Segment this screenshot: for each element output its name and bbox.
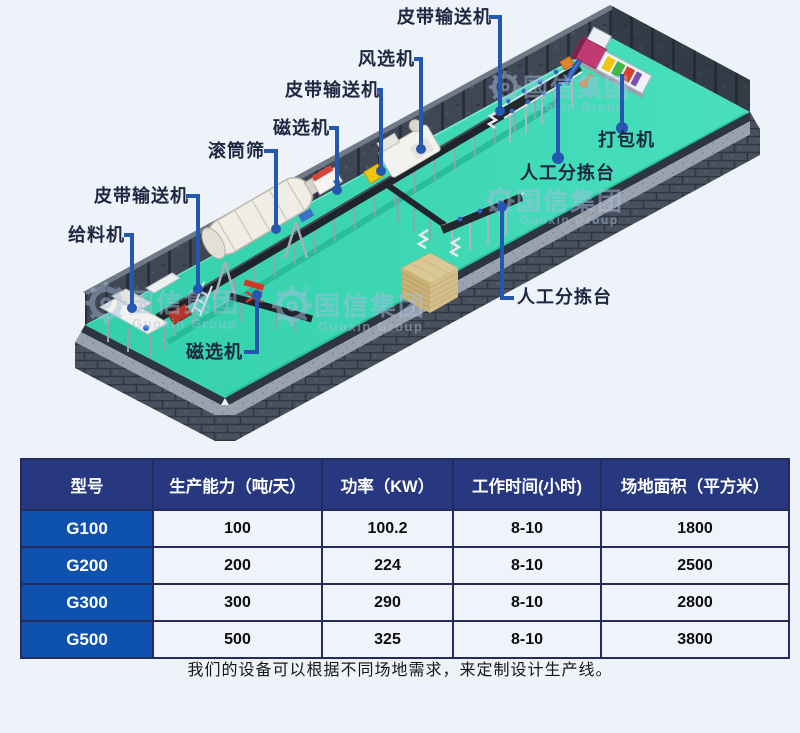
label-magnet-top: 磁选机 — [273, 119, 330, 139]
svg-text:国信集团: 国信集团 — [128, 288, 240, 318]
label-sorting-upper: 人工分拣台 — [520, 164, 615, 184]
table-row: G100 100 100.2 8-10 1800 — [21, 510, 789, 547]
cell-capacity: 100 — [153, 510, 322, 547]
table-row: G300 300 290 8-10 2800 — [21, 584, 789, 621]
cell-capacity: 500 — [153, 621, 322, 658]
label-feeder: 给料机 — [68, 226, 125, 246]
cell-power: 290 — [322, 584, 453, 621]
table-row: G500 500 325 8-10 3800 — [21, 621, 789, 658]
page: 国信集团 Guoxin Group 国信集团 Guoxin Group ® 国信… — [0, 0, 800, 733]
label-trommel-screen: 滚筒筛 — [208, 142, 265, 162]
label-magnet-bottom: 磁选机 — [186, 343, 243, 363]
cell-area: 2800 — [601, 584, 789, 621]
label-belt-conveyor-mid: 皮带输送机 — [285, 81, 380, 101]
cell-power: 100.2 — [322, 510, 453, 547]
col-header-area: 场地面积（平方米） — [601, 459, 789, 510]
svg-text:国信集团: 国信集团 — [523, 73, 631, 102]
label-baler: 打包机 — [598, 131, 655, 151]
label-wind-separator: 风选机 — [358, 50, 415, 70]
cell-hours: 8-10 — [453, 621, 601, 658]
col-header-power: 功率（KW） — [322, 459, 453, 510]
cell-capacity: 300 — [153, 584, 322, 621]
svg-text:国信集团: 国信集团 — [516, 187, 624, 216]
cell-model: G200 — [21, 547, 153, 584]
cell-model: G300 — [21, 584, 153, 621]
svg-text:Guoxin Group: Guoxin Group — [318, 319, 423, 334]
label-belt-conveyor-left: 皮带输送机 — [94, 187, 189, 207]
cell-model: G500 — [21, 621, 153, 658]
svg-text:Guoxin Group: Guoxin Group — [520, 213, 619, 227]
col-header-model: 型号 — [21, 459, 153, 510]
cell-area: 2500 — [601, 547, 789, 584]
spec-table: 型号 生产能力（吨/天） 功率（KW） 工作时间(小时) 场地面积（平方米） G… — [20, 458, 790, 659]
cell-capacity: 200 — [153, 547, 322, 584]
cell-power: 224 — [322, 547, 453, 584]
col-header-hours: 工作时间(小时) — [453, 459, 601, 510]
cell-hours: 8-10 — [453, 584, 601, 621]
cell-hours: 8-10 — [453, 510, 601, 547]
col-header-capacity: 生产能力（吨/天） — [153, 459, 322, 510]
svg-text:®: ® — [303, 283, 310, 293]
cell-area: 3800 — [601, 621, 789, 658]
svg-text:Guoxin Group: Guoxin Group — [132, 316, 237, 331]
svg-text:Guoxin Group: Guoxin Group — [526, 100, 625, 114]
floor — [85, 38, 750, 398]
label-sorting-lower: 人工分拣台 — [517, 288, 612, 308]
label-belt-conveyor-top: 皮带输送机 — [397, 8, 492, 28]
cell-model: G100 — [21, 510, 153, 547]
cell-hours: 8-10 — [453, 547, 601, 584]
table-header-row: 型号 生产能力（吨/天） 功率（KW） 工作时间(小时) 场地面积（平方米） — [21, 459, 789, 510]
table-row: G200 200 224 8-10 2500 — [21, 547, 789, 584]
cell-area: 1800 — [601, 510, 789, 547]
footer-caption: 我们的设备可以根据不同场地需求，来定制设计生产线。 — [0, 656, 800, 680]
svg-text:国信集团: 国信集团 — [314, 291, 426, 321]
cell-power: 325 — [322, 621, 453, 658]
